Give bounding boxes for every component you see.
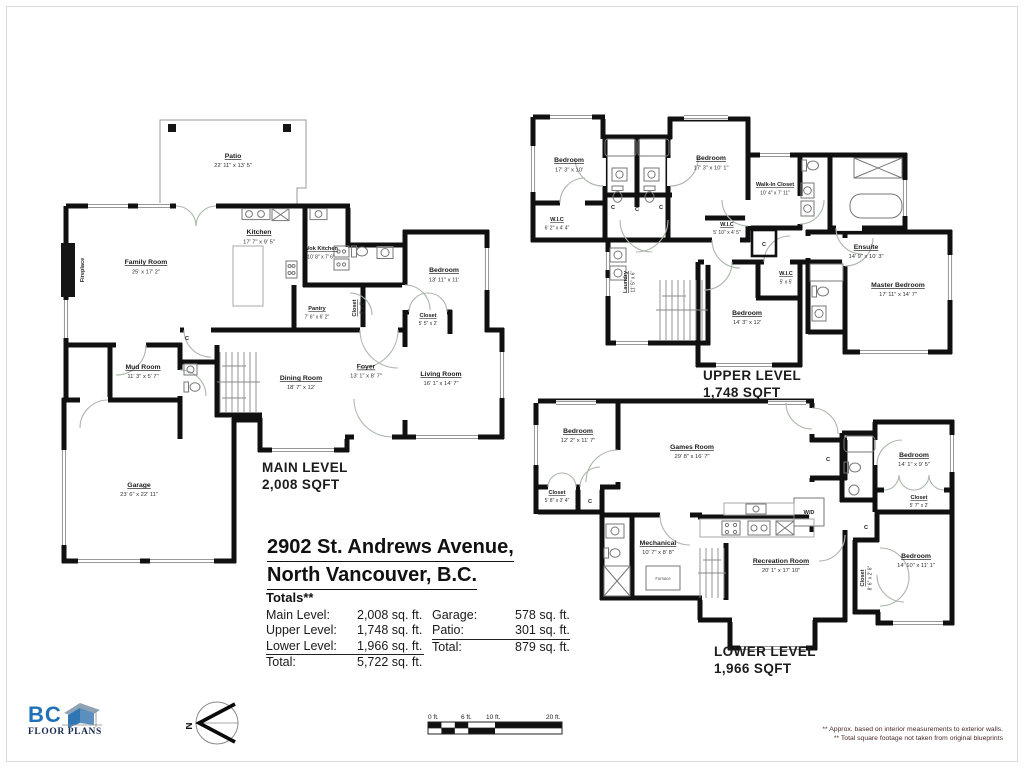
scale-label-6: 6 ft. [461, 714, 472, 721]
totals-value: 301 sq. ft. [515, 623, 570, 638]
footnote-line1: ** Approx. based on interior measurement… [822, 726, 1003, 735]
main-level-sqft: 2,008 SQFT [262, 477, 348, 494]
room-dims-lower-bedroom1: 12' 2" x 11' 7" [561, 438, 596, 444]
totals-row: Upper Level: 1,748 sq. ft. [266, 623, 424, 638]
compass-icon: N [186, 697, 244, 751]
room-dims-mud-room: 11' 3" x 5' 7" [127, 374, 158, 380]
closet-c-marker: C [659, 205, 663, 211]
totals-row: Total: 5,722 sq. ft. [266, 655, 424, 670]
room-label-patio: Patio [225, 153, 242, 160]
fireplace-label: Fireplace [80, 258, 86, 283]
room-label-garage: Garage [127, 482, 151, 489]
room-dims-games-room: 29' 8" x 16' 7" [674, 454, 709, 460]
address-line2: North Vancouver, B.C. [267, 562, 477, 590]
totals-label: Garage: [432, 608, 515, 623]
totals-value: 578 sq. ft. [515, 608, 570, 623]
room-label-family-room: Family Room [125, 259, 168, 266]
room-dims-garage: 23' 6" x 22' 11" [120, 492, 158, 498]
room-dims-wok-kitchen: 10' 8" x 7' 6" [307, 255, 335, 261]
totals-label: Total: [266, 655, 357, 670]
room-dims-upper-bedroom1: 17' 3" x 10' [555, 168, 583, 174]
footnotes: ** Approx. based on interior measurement… [822, 726, 1003, 743]
room-dims-mechanical: 10' 7" x 8' 8" [642, 550, 674, 556]
totals-row: Total: 879 sq. ft. [432, 640, 570, 655]
room-label-upper-bedroom1: Bedroom [554, 157, 584, 164]
upper-level-title-line: UPPER LEVEL [703, 368, 801, 385]
room-label-foyer: Foyer [357, 364, 376, 371]
room-dims-walkin-closet: 10' 4" x 7' 11" [760, 191, 790, 197]
room-label-upper-bedroom2: Bedroom [696, 155, 726, 162]
lower-level-sqft: 1,966 SQFT [714, 661, 816, 678]
room-dims-recreation-room: 20' 1" x 17' 10" [762, 568, 800, 574]
logo-house-icon [60, 701, 104, 731]
totals-value: 2,008 sq. ft. [357, 608, 422, 623]
room-dims-patio: 22' 11" x 13' 5" [214, 163, 252, 169]
room-dims-living-room: 16' 1" x 14' 7" [423, 381, 458, 387]
bc-floor-plans-logo: BC FLOOR PLANS [28, 705, 123, 737]
room-label-recreation-room: Recreation Room [753, 558, 809, 565]
room-label-wic2: W.I.C [720, 222, 734, 228]
upper-level-title: UPPER LEVEL 1,748 SQFT [703, 368, 801, 401]
totals-label: Total: [432, 640, 515, 655]
totals-row: Patio: 301 sq. ft. [432, 623, 570, 639]
room-label-ensuite: Ensuite [854, 244, 879, 251]
totals-value: 1,748 sq. ft. [357, 623, 422, 638]
room-label-hall-closet: Closet [352, 299, 358, 316]
totals-label: Upper Level: [266, 623, 357, 638]
room-dims-wic3: 5' x 5' [780, 280, 793, 286]
scale-bar-segments [428, 722, 562, 734]
washer-dryer-label: W/D [804, 510, 815, 516]
lower-windows [534, 401, 953, 649]
totals-value: 5,722 sq. ft. [357, 655, 422, 670]
upper-walls [531, 117, 952, 367]
room-label-living-room: Living Room [420, 371, 461, 378]
scale-label-0: 0 ft. [428, 714, 439, 721]
floorplan-page: { "address": { "line1": "2902 St. Andrew… [0, 0, 1024, 768]
totals-table-exterior: Garage: 578 sq. ft. Patio: 301 sq. ft. T… [432, 608, 570, 655]
closet-c-marker: C [185, 336, 189, 342]
lower-level-title: LOWER LEVEL 1,966 SQFT [714, 644, 816, 677]
room-dims-upper-bedroom2: 17' 3" x 10' 1" [693, 166, 728, 172]
totals-row: Lower Level: 1,966 sq. ft. [266, 639, 424, 655]
room-dims-lower-closet1: 5' 8" x 3' 4" [545, 498, 570, 504]
furnace-label: Furnace [655, 576, 671, 581]
closet-c-marker: C [826, 457, 830, 463]
room-label-lower-bedroom1: Bedroom [563, 428, 593, 435]
room-dims-master-bedroom: 17' 11" x 14' 7" [879, 292, 917, 298]
lower-level-plan: Bedroom 12' 2" x 11' 7" Games Room 29' 8… [534, 401, 954, 650]
room-dims-lower-bedroom2: 14' 1" x 9' 5" [898, 462, 930, 468]
main-level-title: MAIN LEVEL 2,008 SQFT [262, 460, 348, 493]
address-line1: 2902 St. Andrews Avenue, [267, 534, 514, 562]
room-label-wok-kitchen: Wok Kitchen [304, 246, 338, 252]
room-dims-wic1: 6' 2" x 4' 4" [545, 226, 570, 232]
footnote-line2: ** Total square footage not taken from o… [822, 735, 1003, 744]
room-label-walkin-closet: Walk-In Closet [756, 182, 794, 188]
closet-c-marker: C [611, 205, 615, 211]
room-dims-dining-room: 18' 7" x 12' [287, 385, 315, 391]
scale-bar: 0 ft. 6 ft. 10 ft. 20 ft. [427, 711, 569, 739]
room-dims-bed-closet: 5' 5" x 2' [419, 321, 438, 327]
room-label-lower-closet3: Closet [860, 569, 866, 586]
room-dims-bedroom: 13' 11" x 11' [429, 278, 459, 284]
compass-north-label: N [186, 722, 195, 729]
room-label-mechanical: Mechanical [640, 540, 677, 547]
room-label-bedroom: Bedroom [429, 267, 459, 274]
totals-row: Garage: 578 sq. ft. [432, 608, 570, 623]
room-label-lower-closet1: Closet [548, 490, 565, 496]
room-label-lower-closet2: Closet [910, 495, 927, 501]
main-level-plan: Fireplace Patio 22' 11" x 13' 5" Family … [61, 120, 504, 563]
closet-c-marker: C [864, 525, 868, 531]
room-dims-hall-closet: 6' x 2' [360, 302, 366, 315]
totals-label: Main Level: [266, 608, 357, 623]
room-dims-lower-bedroom3: 14' 10" x 11' 1" [897, 563, 935, 569]
room-label-bed-closet: Closet [419, 313, 436, 319]
room-label-wic1: W.I.C [550, 217, 564, 223]
room-dims-ensuite: 14' 9" x 10' 3" [848, 254, 883, 260]
room-dims-lower-closet2: 5' 7" x 2' [910, 503, 929, 509]
room-label-master-bedroom: Master Bedroom [871, 282, 925, 289]
lower-level-title-line: LOWER LEVEL [714, 644, 816, 661]
scale-label-10: 10 ft. [486, 714, 501, 721]
totals-row: Main Level: 2,008 sq. ft. [266, 608, 424, 623]
totals-table-levels: Main Level: 2,008 sq. ft. Upper Level: 1… [266, 608, 424, 670]
room-label-laundry: Laundry [623, 270, 629, 293]
closet-c-marker: C [588, 499, 592, 505]
room-dims-wic2: 5' 10" x 4' 5" [713, 230, 741, 236]
room-dims-laundry: 11' 5" x 6' [631, 271, 637, 292]
room-label-games-room: Games Room [670, 444, 714, 451]
patio-post [168, 124, 176, 132]
upper-level-plan: Bedroom 17' 3" x 10' W.I.C 6' 2" x 4' 4"… [531, 115, 952, 367]
lower-stairs [698, 548, 726, 598]
room-dims-lower-closet3: 8' 6" x 2' 6" [868, 565, 874, 590]
room-dims-upper-bedroom3: 14' 3" x 12' [733, 320, 761, 326]
room-label-wic3: W.I.C [779, 271, 793, 277]
room-dims-pantry: 7' 6" x 6' 2" [305, 315, 330, 321]
room-label-lower-bedroom3: Bedroom [901, 553, 931, 560]
totals-label: Patio: [432, 623, 515, 638]
closet-c-marker: C [635, 207, 639, 213]
upper-level-sqft: 1,748 SQFT [703, 385, 801, 402]
room-label-mud-room: Mud Room [125, 364, 160, 371]
lower-walls [536, 401, 954, 650]
totals-value: 879 sq. ft. [515, 640, 570, 655]
fireplace [61, 243, 75, 297]
main-stairs [217, 352, 260, 413]
room-label-pantry: Pantry [308, 306, 326, 312]
room-label-kitchen: Kitchen [247, 229, 272, 236]
scale-label-20: 20 ft. [546, 714, 561, 721]
totals-value: 1,966 sq. ft. [357, 639, 422, 654]
room-dims-family-room: 25' x 17' 2" [132, 270, 160, 276]
room-dims-foyer: 13' 1" x 8' 7" [350, 374, 382, 380]
room-label-dining-room: Dining Room [280, 375, 322, 382]
room-label-lower-bedroom2: Bedroom [899, 452, 929, 459]
totals-heading: Totals** [266, 590, 313, 605]
room-label-upper-bedroom3: Bedroom [732, 310, 762, 317]
closet-c-marker: C [762, 242, 766, 248]
main-level-title-line: MAIN LEVEL [262, 460, 348, 477]
room-dims-kitchen: 17' 7" x 9' 5" [243, 240, 275, 246]
lower-openings [536, 403, 952, 648]
totals-label: Lower Level: [266, 639, 357, 654]
address-block: 2902 St. Andrews Avenue, North Vancouver… [267, 534, 514, 590]
patio-post [283, 124, 291, 132]
